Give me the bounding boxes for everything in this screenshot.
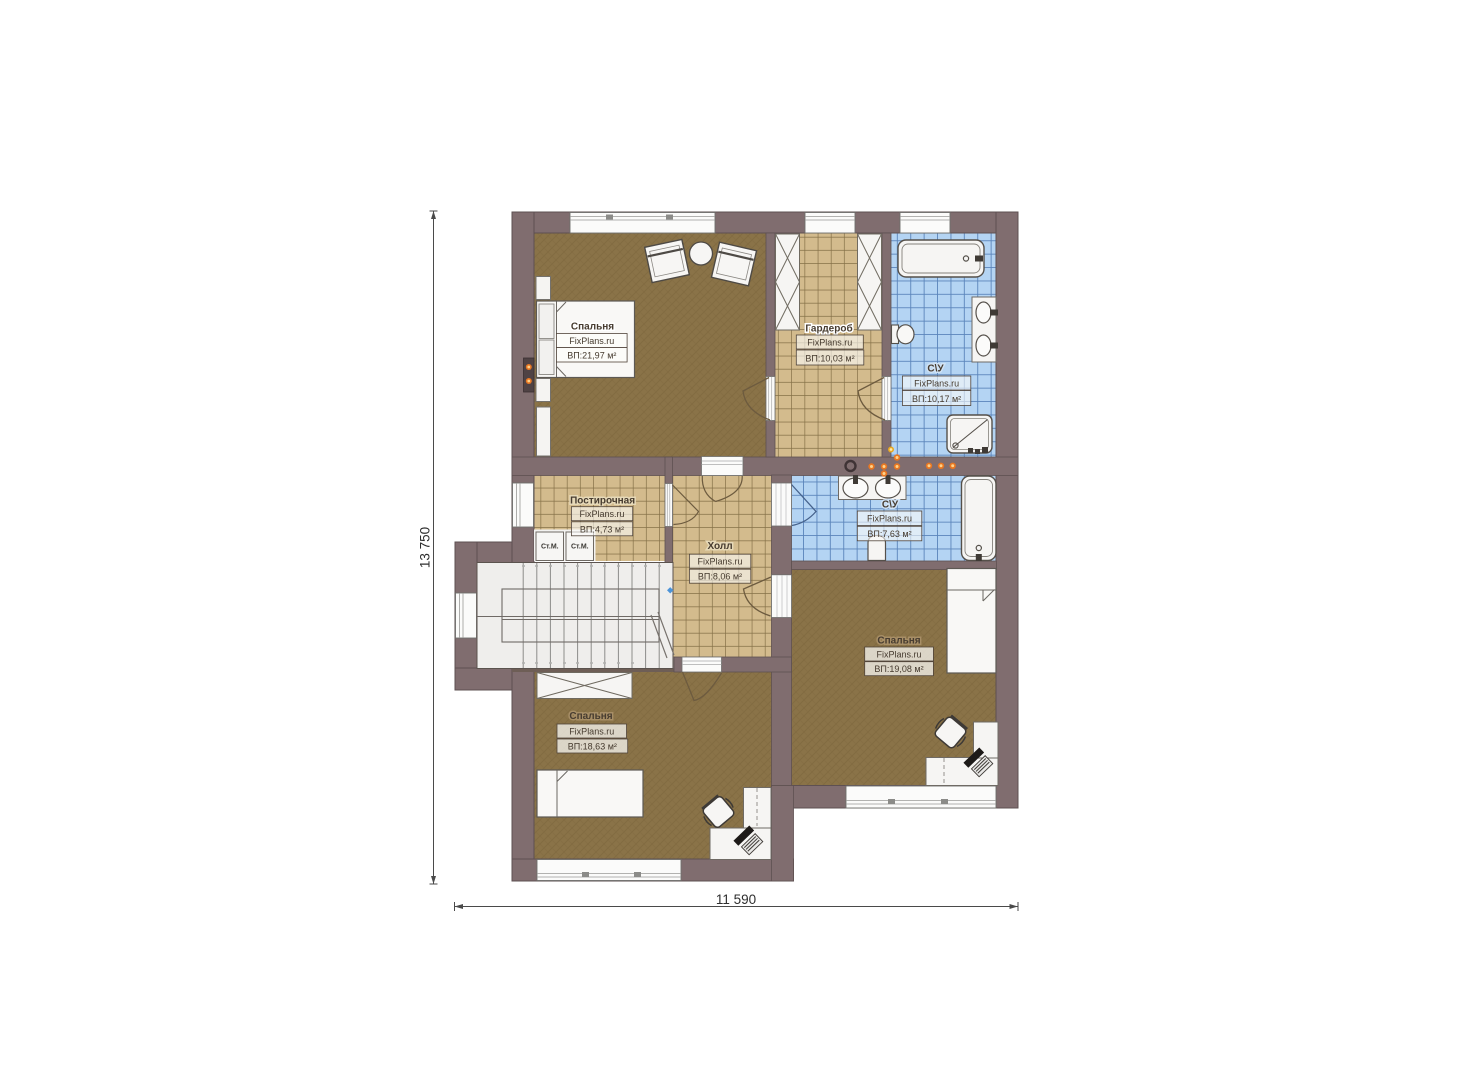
- svg-text:ВП:10,03 м²: ВП:10,03 м²: [805, 354, 854, 364]
- svg-text:FixPlans.ru: FixPlans.ru: [807, 338, 852, 348]
- svg-text:FixPlans.ru: FixPlans.ru: [579, 509, 624, 519]
- svg-text:Холл: Холл: [707, 541, 732, 552]
- svg-text:FixPlans.ru: FixPlans.ru: [697, 557, 742, 567]
- svg-text:ВП:18,63 м²: ВП:18,63 м²: [568, 742, 617, 752]
- svg-text:ВП:19,08 м²: ВП:19,08 м²: [874, 664, 923, 674]
- svg-text:ВП:21,97 м²: ВП:21,97 м²: [567, 351, 616, 361]
- svg-text:Ст.М.: Ст.М.: [571, 544, 589, 551]
- svg-text:Ст.М.: Ст.М.: [541, 544, 559, 551]
- svg-text:FixPlans.ru: FixPlans.ru: [569, 336, 614, 346]
- svg-text:Спальня: Спальня: [571, 322, 614, 333]
- svg-text:FixPlans.ru: FixPlans.ru: [569, 727, 614, 737]
- svg-text:Спальня: Спальня: [877, 636, 920, 647]
- svg-text:Спальня: Спальня: [569, 711, 612, 722]
- svg-text:FixPlans.ru: FixPlans.ru: [876, 650, 921, 660]
- svg-text:ВП:8,06 м²: ВП:8,06 м²: [698, 572, 742, 582]
- svg-text:С\У: С\У: [927, 364, 944, 375]
- svg-text:ВП:4,73 м²: ВП:4,73 м²: [580, 524, 624, 534]
- svg-text:FixPlans.ru: FixPlans.ru: [914, 379, 959, 389]
- svg-text:ВП:10,17 м²: ВП:10,17 м²: [912, 394, 961, 404]
- svg-text:13 750: 13 750: [418, 527, 433, 568]
- svg-text:ВП:7,63 м²: ВП:7,63 м²: [867, 529, 911, 539]
- svg-text:Постирочная: Постирочная: [570, 496, 635, 507]
- svg-text:FixPlans.ru: FixPlans.ru: [867, 514, 912, 524]
- svg-text:Гардероб: Гардероб: [805, 323, 852, 335]
- svg-text:С\У: С\У: [882, 500, 899, 511]
- svg-text:11 590: 11 590: [716, 892, 756, 907]
